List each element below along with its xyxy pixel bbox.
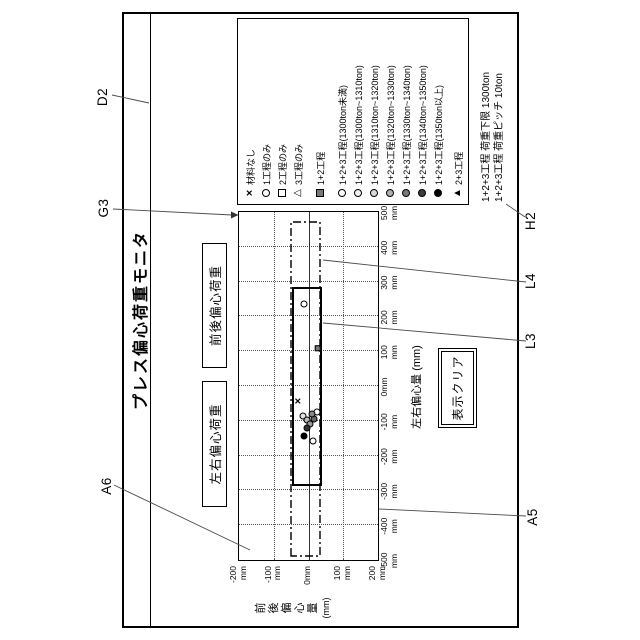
left-right-load-label: 左右偏心荷重 bbox=[205, 404, 224, 485]
legend-item-label: 1+2工程 bbox=[314, 152, 327, 185]
circle-marker-icon bbox=[386, 189, 394, 197]
y-tick-label: 200mm bbox=[368, 566, 387, 602]
legend-item: △3工程のみ bbox=[290, 19, 306, 199]
eccentric-load-plot: × bbox=[238, 211, 379, 561]
point-square-marker bbox=[315, 345, 322, 352]
x-tick-label: -200mm bbox=[380, 442, 399, 472]
ref-label-h2: H2 bbox=[523, 208, 538, 234]
legend-item-label: 1+2+3工程(1300ton未満) bbox=[336, 85, 349, 185]
x-tick-label: 200mm bbox=[380, 302, 399, 332]
square-marker-icon bbox=[278, 189, 286, 197]
x-tick-label: 300mm bbox=[380, 268, 399, 298]
ref-label-l4: L4 bbox=[523, 268, 538, 294]
legend-item-label: 1+2+3工程(1300ton~1310ton) bbox=[352, 65, 365, 185]
y-axis-unit: (mm) bbox=[321, 590, 331, 626]
legend-item-label: 3工程のみ bbox=[292, 144, 305, 185]
gridline-h bbox=[343, 212, 344, 560]
x-tick-label: 100mm bbox=[380, 337, 399, 367]
x-marker-icon: × bbox=[245, 190, 256, 196]
legend-item-label: 2工程のみ bbox=[276, 144, 289, 185]
window-title: プレス偏心荷重モニタ bbox=[127, 12, 151, 628]
legend-item-label: 1工程のみ bbox=[260, 144, 273, 185]
x-axis-title: 左右偏心量 (mm) bbox=[408, 312, 424, 462]
legend-item-label: 1+2+3工程(1330ton~1340ton) bbox=[400, 65, 413, 185]
front-back-load-button[interactable]: 前後偏心荷重 bbox=[202, 243, 227, 368]
x-tick-label: -400mm bbox=[380, 511, 399, 541]
circle-marker-icon bbox=[338, 189, 346, 197]
circle-marker-icon bbox=[418, 189, 426, 197]
load-pitch-note: 1+2+3工程 荷重ピッチ 10ton bbox=[490, 16, 505, 202]
point-circle-marker bbox=[310, 437, 317, 444]
display-clear-inner: 表示クリア bbox=[441, 351, 474, 425]
ref-label-d2: D2 bbox=[95, 84, 110, 110]
legend-item: 1工程のみ bbox=[258, 19, 274, 199]
legend-item-label: 1+2+3工程(1320ton~1330ton) bbox=[384, 65, 397, 185]
gridline-h bbox=[274, 212, 275, 560]
left-right-load-button[interactable]: 左右偏心荷重 bbox=[202, 381, 227, 507]
legend-item: 1+2+3工程(1320ton~1330ton) bbox=[382, 19, 398, 199]
display-clear-label: 表示クリア bbox=[449, 356, 466, 421]
legend-item-label: 1+2+3工程(1350ton以上) bbox=[432, 85, 445, 185]
ref-label-l3: L3 bbox=[523, 328, 538, 354]
legend-item: 1+2+3工程(1350ton以上) bbox=[430, 19, 446, 199]
ref-label-a5: A5 bbox=[525, 504, 540, 530]
display-clear-button[interactable]: 表示クリア bbox=[438, 348, 477, 428]
circle-marker-icon bbox=[434, 189, 442, 197]
point-circle-marker bbox=[300, 433, 307, 440]
legend-item-label: 1+2+3工程(1340ton~1350ton) bbox=[416, 65, 429, 185]
legend-item: ▲2+3工程 bbox=[450, 19, 466, 199]
y-tick-label: -100mm bbox=[264, 566, 283, 602]
x-tick-label: 400mm bbox=[380, 233, 399, 263]
point-circle-marker bbox=[308, 410, 315, 417]
triangle-open-marker-icon: △ bbox=[293, 189, 303, 197]
legend-item: 2工程のみ bbox=[274, 19, 290, 199]
legend-item: 1+2+3工程(1330ton~1340ton) bbox=[398, 19, 414, 199]
point-x-marker: × bbox=[294, 398, 305, 404]
legend-item: 1+2+3工程(1300ton~1310ton) bbox=[350, 19, 366, 199]
triangle-filled-marker-icon: ▲ bbox=[453, 188, 463, 198]
legend-item: 1+2+3工程(1300ton未満) bbox=[334, 19, 350, 199]
rotated-figure-stage: プレス偏心荷重モニタ 左右偏心荷重 前後偏心荷重 × -500mm-400mm-… bbox=[87, 12, 557, 628]
front-back-load-label: 前後偏心荷重 bbox=[205, 265, 224, 346]
square-marker-icon bbox=[316, 189, 324, 197]
x-tick-label: -100mm bbox=[380, 407, 399, 437]
x-tick-label: 0mm bbox=[380, 372, 390, 402]
legend-box: ×材料なし1工程のみ2工程のみ△3工程のみ1+2工程1+2+3工程(1300to… bbox=[237, 18, 469, 205]
die-area-rect bbox=[292, 287, 322, 486]
y-tick-label: 100mm bbox=[333, 566, 352, 602]
circle-marker-icon bbox=[354, 189, 362, 197]
legend-item: 1+2工程 bbox=[312, 19, 328, 199]
legend-item: ×材料なし bbox=[242, 19, 258, 199]
point-circle-marker bbox=[300, 301, 307, 308]
ref-label-g3: G3 bbox=[96, 195, 111, 221]
circle-marker-icon bbox=[402, 189, 410, 197]
legend-item-label: 材料なし bbox=[244, 149, 257, 185]
legend-item-label: 2+3工程 bbox=[452, 152, 465, 185]
x-tick-label: -300mm bbox=[380, 476, 399, 506]
legend-item: 1+2+3工程(1310ton~1320ton) bbox=[366, 19, 382, 199]
ref-label-a6: A6 bbox=[99, 473, 114, 499]
circle-marker-icon bbox=[370, 189, 378, 197]
y-axis-title: 前後偏心量 bbox=[255, 601, 320, 615]
y-tick-label: -200mm bbox=[229, 566, 248, 602]
point-circle-marker bbox=[304, 425, 311, 432]
legend-item-label: 1+2+3工程(1310ton~1320ton) bbox=[368, 65, 381, 185]
circle-marker-icon bbox=[262, 189, 270, 197]
legend-item: 1+2+3工程(1340ton~1350ton) bbox=[414, 19, 430, 199]
y-tick-label: 0mm bbox=[303, 566, 313, 602]
